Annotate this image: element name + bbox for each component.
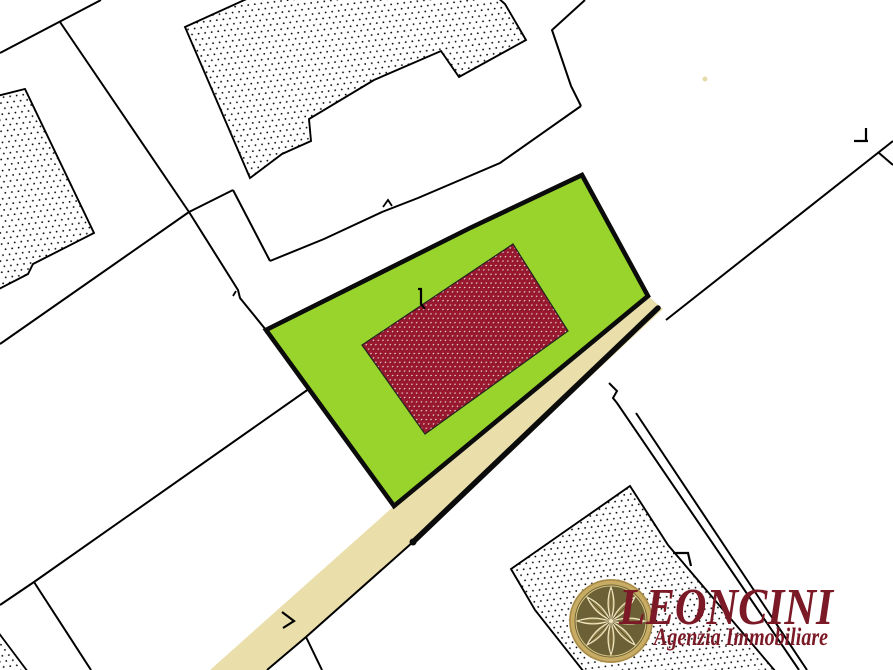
svg-text:Agenzia Immobiliare: Agenzia Immobiliare [652,624,828,651]
